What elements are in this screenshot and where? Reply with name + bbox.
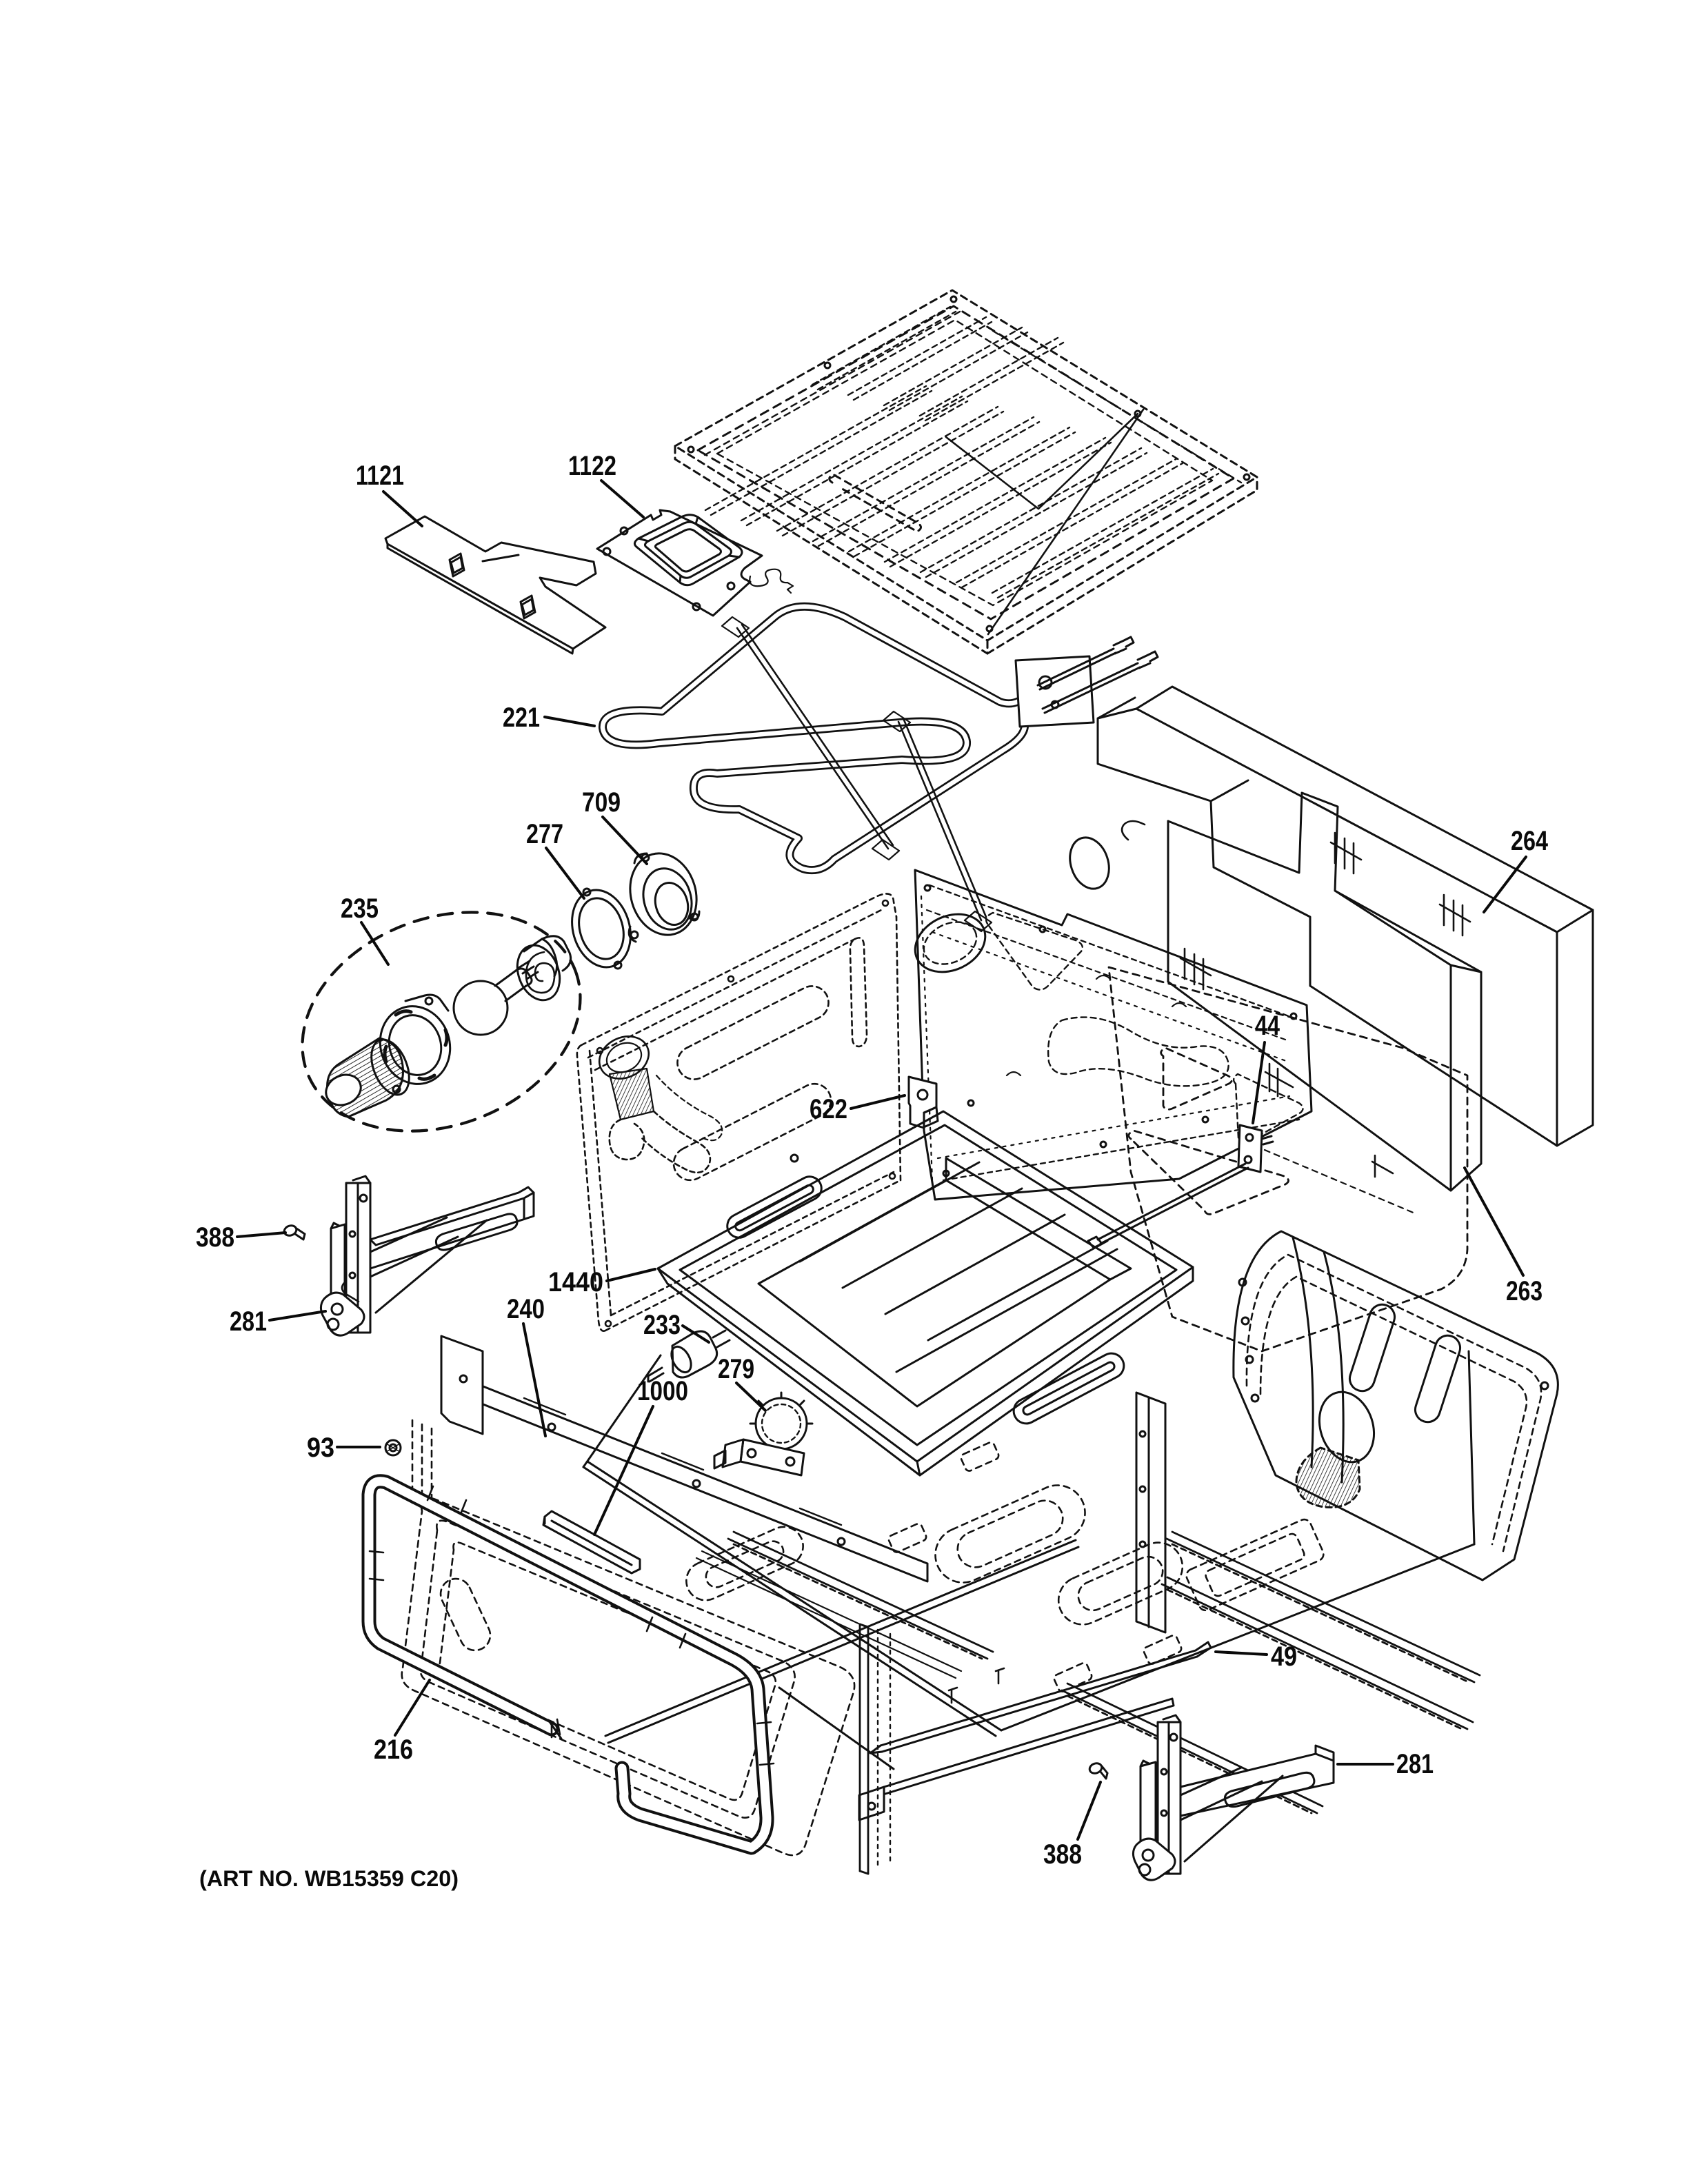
svg-text:240: 240: [507, 1294, 545, 1324]
svg-text:388: 388: [196, 1222, 234, 1253]
svg-text:233: 233: [643, 1310, 681, 1340]
svg-text:264: 264: [1511, 826, 1549, 856]
svg-text:281: 281: [230, 1306, 267, 1337]
svg-text:235: 235: [341, 893, 379, 924]
svg-text:709: 709: [582, 787, 621, 818]
svg-text:279: 279: [718, 1354, 754, 1384]
svg-text:281: 281: [1396, 1749, 1434, 1779]
svg-text:1122: 1122: [568, 451, 616, 481]
svg-text:1000: 1000: [637, 1376, 688, 1406]
svg-text:216: 216: [374, 1735, 413, 1765]
svg-text:277: 277: [526, 819, 563, 849]
svg-text:(ART NO. WB15359 C20): (ART NO. WB15359 C20): [199, 1866, 459, 1891]
svg-text:93: 93: [307, 1433, 334, 1463]
svg-text:1121: 1121: [356, 461, 404, 491]
svg-text:44: 44: [1255, 1011, 1280, 1041]
svg-text:622: 622: [810, 1094, 847, 1124]
svg-text:1440: 1440: [548, 1267, 603, 1297]
svg-text:221: 221: [503, 702, 540, 733]
svg-text:263: 263: [1506, 1276, 1543, 1306]
svg-text:49: 49: [1271, 1641, 1297, 1672]
svg-text:388: 388: [1043, 1839, 1082, 1870]
